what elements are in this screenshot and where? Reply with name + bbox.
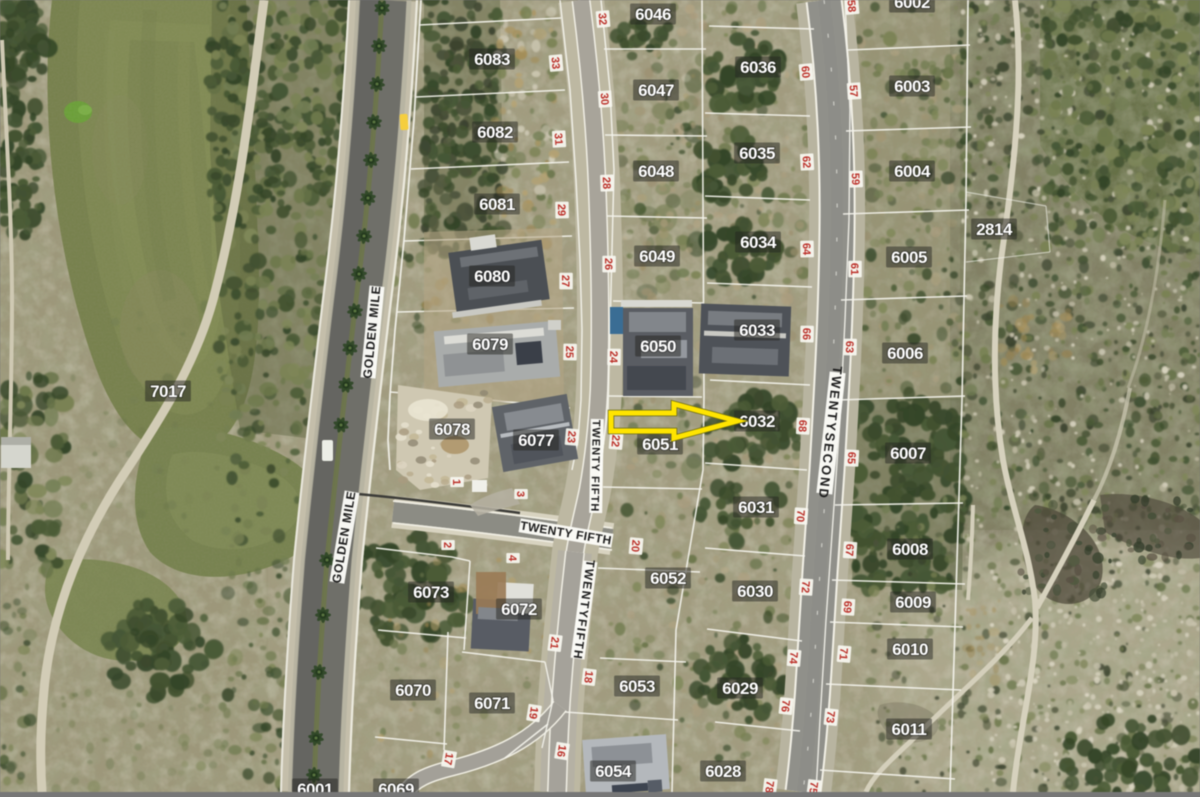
svg-text:6007: 6007 [890,444,926,463]
svg-text:6033: 6033 [739,321,775,340]
svg-text:23: 23 [564,430,577,443]
svg-text:29: 29 [555,204,567,216]
svg-text:6071: 6071 [474,694,510,713]
svg-text:6003: 6003 [894,77,930,96]
svg-text:6030: 6030 [737,582,773,601]
svg-text:6028: 6028 [705,762,741,781]
svg-text:6081: 6081 [479,195,515,214]
svg-text:6008: 6008 [892,540,928,559]
svg-text:6069: 6069 [378,780,414,792]
svg-text:6049: 6049 [639,247,675,266]
svg-text:6029: 6029 [722,679,758,698]
svg-text:6010: 6010 [892,640,928,659]
svg-text:6083: 6083 [474,50,510,69]
svg-text:6011: 6011 [892,720,927,739]
svg-text:6036: 6036 [740,58,776,77]
svg-text:6082: 6082 [477,123,513,142]
svg-text:6031: 6031 [738,498,774,517]
svg-text:6006: 6006 [887,344,923,363]
svg-text:6052: 6052 [650,569,686,588]
svg-text:6072: 6072 [501,600,537,619]
svg-text:6054: 6054 [595,762,632,781]
svg-text:25: 25 [563,346,575,358]
svg-text:6002: 6002 [894,0,930,12]
svg-text:TWENTY FIFTH: TWENTY FIFTH [588,420,602,513]
svg-text:7017: 7017 [150,382,186,401]
svg-text:6005: 6005 [891,248,927,267]
svg-text:6035: 6035 [739,144,775,163]
svg-text:21: 21 [547,636,560,650]
svg-text:6078: 6078 [434,420,470,439]
svg-text:6034: 6034 [740,233,777,252]
svg-text:6048: 6048 [638,162,674,181]
svg-text:6050: 6050 [640,337,676,356]
svg-text:27: 27 [559,275,571,287]
svg-text:6004: 6004 [894,162,931,181]
svg-text:33: 33 [548,56,561,69]
svg-text:6070: 6070 [395,681,431,700]
svg-text:6047: 6047 [638,81,674,100]
svg-text:6053: 6053 [619,677,655,696]
svg-text:2814: 2814 [976,220,1013,239]
svg-text:6079: 6079 [472,335,508,354]
svg-text:6073: 6073 [413,583,449,602]
svg-text:6046: 6046 [635,5,671,24]
svg-text:6009: 6009 [895,593,931,612]
svg-text:6080: 6080 [474,267,510,286]
svg-text:6001: 6001 [297,780,333,792]
svg-text:6077: 6077 [518,431,554,450]
svg-text:31: 31 [552,133,565,146]
